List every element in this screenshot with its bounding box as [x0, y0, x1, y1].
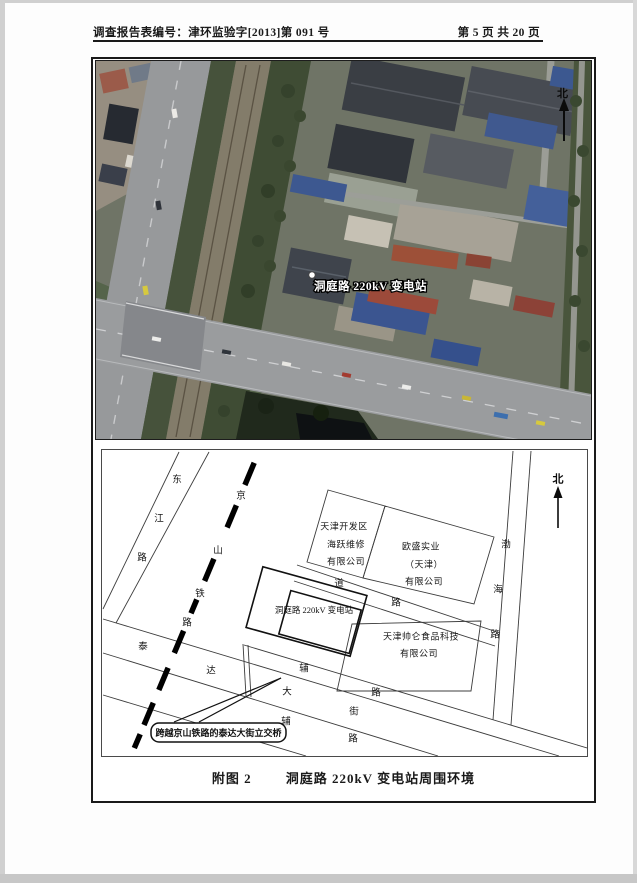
building-ousheng-line2: （天津）: [405, 560, 443, 570]
road-label-dongjiang-3: 路: [137, 552, 147, 564]
building-ousheng: 欧盛实业 （天津） 有限公司: [363, 506, 494, 604]
building-ousheng-line1: 欧盛实业: [402, 541, 440, 552]
building-haiyue-line3: 有限公司: [327, 556, 365, 567]
road-label-teda-2: 达: [206, 665, 216, 677]
figure-frame: 洞庭路 220kV 变电站 北 东 江 路: [91, 57, 596, 803]
scan-edge-top: [0, 0, 637, 3]
header-page-info: 第 5 页 共 20 页: [458, 24, 540, 40]
satellite-station-label: 洞庭路 220kV 变电站: [314, 279, 427, 293]
satellite-image: 洞庭路 220kV 变电站 北: [95, 60, 592, 440]
building-ousheng-line3: 有限公司: [405, 576, 443, 587]
building-shuailun: 天津帅仑食品科技 有限公司: [337, 621, 481, 691]
figure-caption: 附图 2洞庭路 220kV 变电站周围环境: [93, 768, 594, 787]
road-label-dongjiang-1: 东: [172, 474, 182, 486]
building-haiyue: 天津开发区 海跃维修 有限公司: [307, 490, 385, 578]
road-label-inner-2: 路: [391, 597, 401, 609]
road-label-south-service-2: 路: [348, 733, 358, 745]
station-marker: [309, 272, 315, 278]
building-shuailun-line1: 天津帅仑食品科技: [383, 631, 459, 642]
building-haiyue-line2: 海跃维修: [327, 539, 365, 550]
substation-label: 洞庭路 220kV 变电站: [275, 605, 354, 615]
header-rule: [93, 40, 543, 42]
map-north-label: 北: [553, 472, 564, 486]
jingshan-railway: [134, 463, 254, 748]
overpass-callout-label: 跨越京山铁路的泰达大街立交桥: [155, 727, 282, 738]
header-report-number: 调查报告表编号：津环监验字[2013]第 091 号: [93, 24, 330, 40]
building-shuailun-line2: 有限公司: [400, 648, 438, 659]
scan-edge-right: [633, 0, 637, 883]
schematic-map: 东 江 路 泰 达 大 街 辅 路 辅 路: [101, 449, 588, 757]
overpass-callout: 跨越京山铁路的泰达大街立交桥: [151, 678, 286, 742]
building-haiyue-line1: 天津开发区: [320, 521, 368, 532]
railway-label-3: 铁: [195, 588, 205, 600]
figure-caption-title: 洞庭路 220kV 变电站周围环境: [286, 771, 475, 786]
railway-label-4: 路: [182, 617, 192, 629]
road-label-teda-4: 街: [349, 706, 359, 718]
road-dongjiang: 东 江 路: [103, 452, 209, 623]
road-bohai: 渤 海 路: [490, 451, 531, 725]
road-label-north-service-2: 路: [371, 687, 381, 699]
figure-caption-number: 附图 2: [212, 771, 252, 786]
railway-label-1: 京: [236, 490, 246, 502]
scan-edge-left: [0, 0, 5, 883]
railway-label-2: 山: [213, 546, 223, 557]
road-label-north-service-1: 辅: [299, 663, 309, 675]
road-label-dongjiang-2: 江: [154, 514, 164, 525]
road-label-teda-3: 大: [282, 686, 292, 698]
road-label-bohai-2: 海: [493, 584, 503, 596]
map-north-arrow: 北: [553, 472, 564, 529]
road-label-bohai-1: 渤: [501, 539, 511, 551]
satellite-art: 洞庭路 220kV 变电站 北: [96, 61, 591, 439]
satellite-north-label: 北: [557, 86, 568, 100]
road-label-teda-1: 泰: [138, 641, 148, 653]
substation-outline: 洞庭路 220kV 变电站: [246, 567, 367, 657]
scan-edge-bottom: [0, 874, 637, 883]
